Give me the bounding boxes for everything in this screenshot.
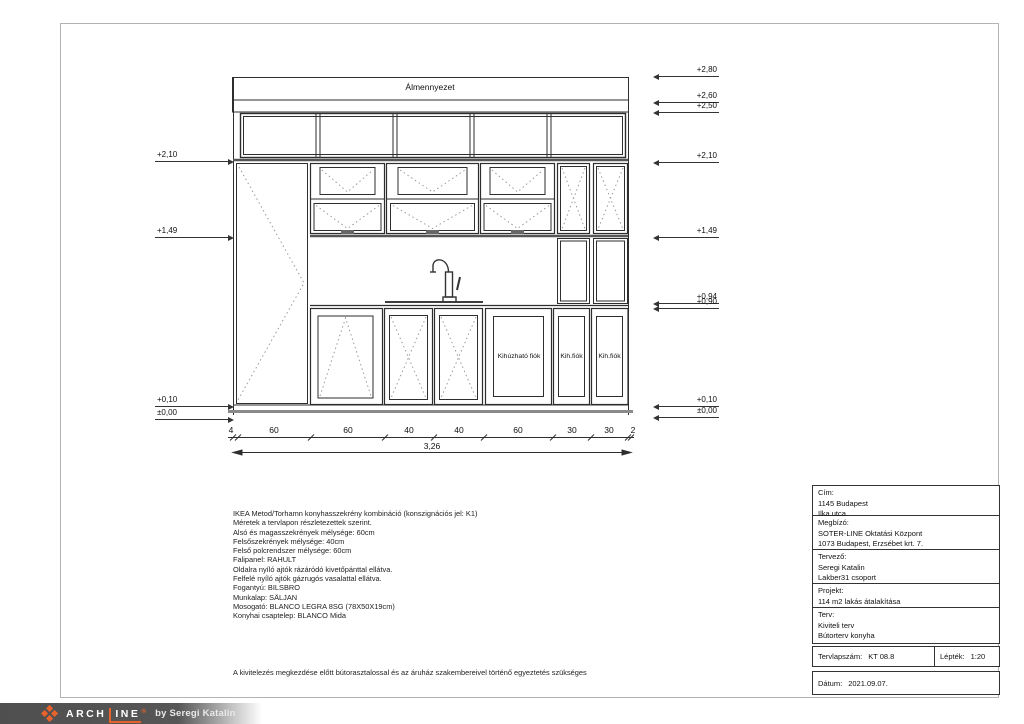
drawer-label: Kih.fiók xyxy=(591,353,628,360)
level-marker: +1,49 xyxy=(655,225,719,238)
dimension-label: 30 xyxy=(596,425,622,435)
title-block-sheet-scale: Tervlapszám: KT 08.8 Lépték: 1:20 xyxy=(812,646,1000,667)
note-line: IKEA Metod/Torhamn konyhasszekrény kombi… xyxy=(233,509,653,518)
drawer-label: Kih.fiók xyxy=(553,353,590,360)
registered-mark-icon: ® xyxy=(141,708,146,715)
level-arrow-icon xyxy=(653,74,659,80)
note-line: Oldalra nyíló ajtók rázáródó kivetőpántt… xyxy=(233,565,653,574)
note-line: Konyhai csaptelep: BLANCO Mida xyxy=(233,611,653,620)
level-arrow-icon xyxy=(653,415,659,421)
level-marker: +1,49 xyxy=(155,225,232,238)
date-value: 2021.09.07. xyxy=(848,679,888,688)
archline-footer: ARCHINE® by Seregi Katalin xyxy=(0,703,262,724)
brand-wordmark: ARCHINE® xyxy=(66,708,146,720)
brand-prefix: ARCH xyxy=(66,708,106,720)
field-label: Lépték: xyxy=(940,652,965,661)
title-block-plan: Terv: Kiviteli terv Bútorterv konyha xyxy=(812,607,1000,644)
field-label: Tervlapszám: xyxy=(818,652,862,661)
faucet-icon xyxy=(430,260,460,302)
brand-suffix: INE xyxy=(109,708,141,723)
title-block: Cím: 1145 Budapest Ilka utca Megbízó: SO… xyxy=(812,486,1000,695)
level-arrow-icon xyxy=(653,160,659,166)
title-block-designer: Tervező: Seregi Katalin Lakber31 csoport xyxy=(812,549,1000,584)
drawer-label: Kihúzható fiók xyxy=(486,353,552,360)
field-label: Dátum: xyxy=(818,679,842,688)
scale-cell: Lépték: 1:20 xyxy=(935,647,990,666)
sheet-number: KT 08.8 xyxy=(868,652,894,661)
level-marker: +2,80 xyxy=(655,64,719,77)
dimension-label: 30 xyxy=(559,425,585,435)
field-label: Projekt: xyxy=(818,586,994,597)
note-line: Felsőszekrények mélysége: 40cm xyxy=(233,537,653,546)
level-marker: ±0,00 xyxy=(655,405,719,418)
note-line: Alsó és magasszekrények mélysége: 60cm xyxy=(233,528,653,537)
title-block-client: Megbízó: SOTER-LINE Oktatási Központ 107… xyxy=(812,515,1000,550)
note-line: Felfelé nyíló ajtók gázrugós vasalattal … xyxy=(233,574,653,583)
dimension-label: 60 xyxy=(505,425,531,435)
dimension-total-label: 3,26 xyxy=(419,441,445,451)
level-marker: +2,10 xyxy=(155,149,232,162)
drawing-sheet: Álmennyezet Kihúzható fiók Kih.fiók Kih.… xyxy=(0,0,1024,724)
dimension-label: 60 xyxy=(335,425,361,435)
dimension-label: 4 xyxy=(218,425,244,435)
note-line: Felső polcrendszer mélysége: 60cm xyxy=(233,546,653,555)
level-arrow-icon xyxy=(228,235,234,241)
note-line: Munkalap: SÄLJAN xyxy=(233,593,653,602)
note-line: Mosogató: BLANCO LEGRA 8SG (78X50X19cm) xyxy=(233,602,653,611)
level-marker: +2,10 xyxy=(655,150,719,163)
dimension-label: 60 xyxy=(261,425,287,435)
field-label: Cím: xyxy=(818,488,994,499)
title-block-address: Cím: 1145 Budapest Ilka utca xyxy=(812,485,1000,516)
level-arrow-icon xyxy=(653,306,659,312)
level-marker: +0,10 xyxy=(155,394,232,407)
level-arrow-icon xyxy=(228,159,234,165)
title-block-date: Dátum: 2021.09.07. xyxy=(812,671,1000,695)
brand-byline: by Seregi Katalin xyxy=(155,708,235,719)
level-arrow-icon xyxy=(653,110,659,116)
level-marker: +0,90 xyxy=(655,296,719,309)
elevation-linework xyxy=(228,78,634,456)
field-label: Terv: xyxy=(818,610,994,621)
dimension-label: 40 xyxy=(446,425,472,435)
ceiling-label: Álmennyezet xyxy=(232,82,628,92)
level-arrow-icon xyxy=(228,417,234,423)
dimension-label: 40 xyxy=(396,425,422,435)
level-marker: +2,50 xyxy=(655,100,719,113)
door-swing-marks xyxy=(238,167,623,400)
notes-block: IKEA Metod/Torhamn konyhasszekrény kombi… xyxy=(233,509,653,621)
archline-logo-icon xyxy=(42,706,57,721)
level-marker: ±0,00 xyxy=(155,407,232,420)
sheet-number-cell: Tervlapszám: KT 08.8 xyxy=(813,647,935,666)
construction-note: A kivitelezés megkezdése előtt bútoraszt… xyxy=(233,668,713,677)
note-line: Méretek a tervlapon részletezettek szeri… xyxy=(233,518,653,527)
title-block-project: Projekt: 114 m2 lakás átalakítása xyxy=(812,583,1000,608)
note-line: Fogantyú: BILSBRO xyxy=(233,583,653,592)
field-label: Megbízó: xyxy=(818,518,994,529)
dimension-label: 2 xyxy=(620,425,646,435)
field-label: Tervező: xyxy=(818,552,994,563)
scale-value: 1:20 xyxy=(971,652,986,661)
level-arrow-icon xyxy=(653,235,659,241)
note-line: Falipanel: RAHULT xyxy=(233,555,653,564)
